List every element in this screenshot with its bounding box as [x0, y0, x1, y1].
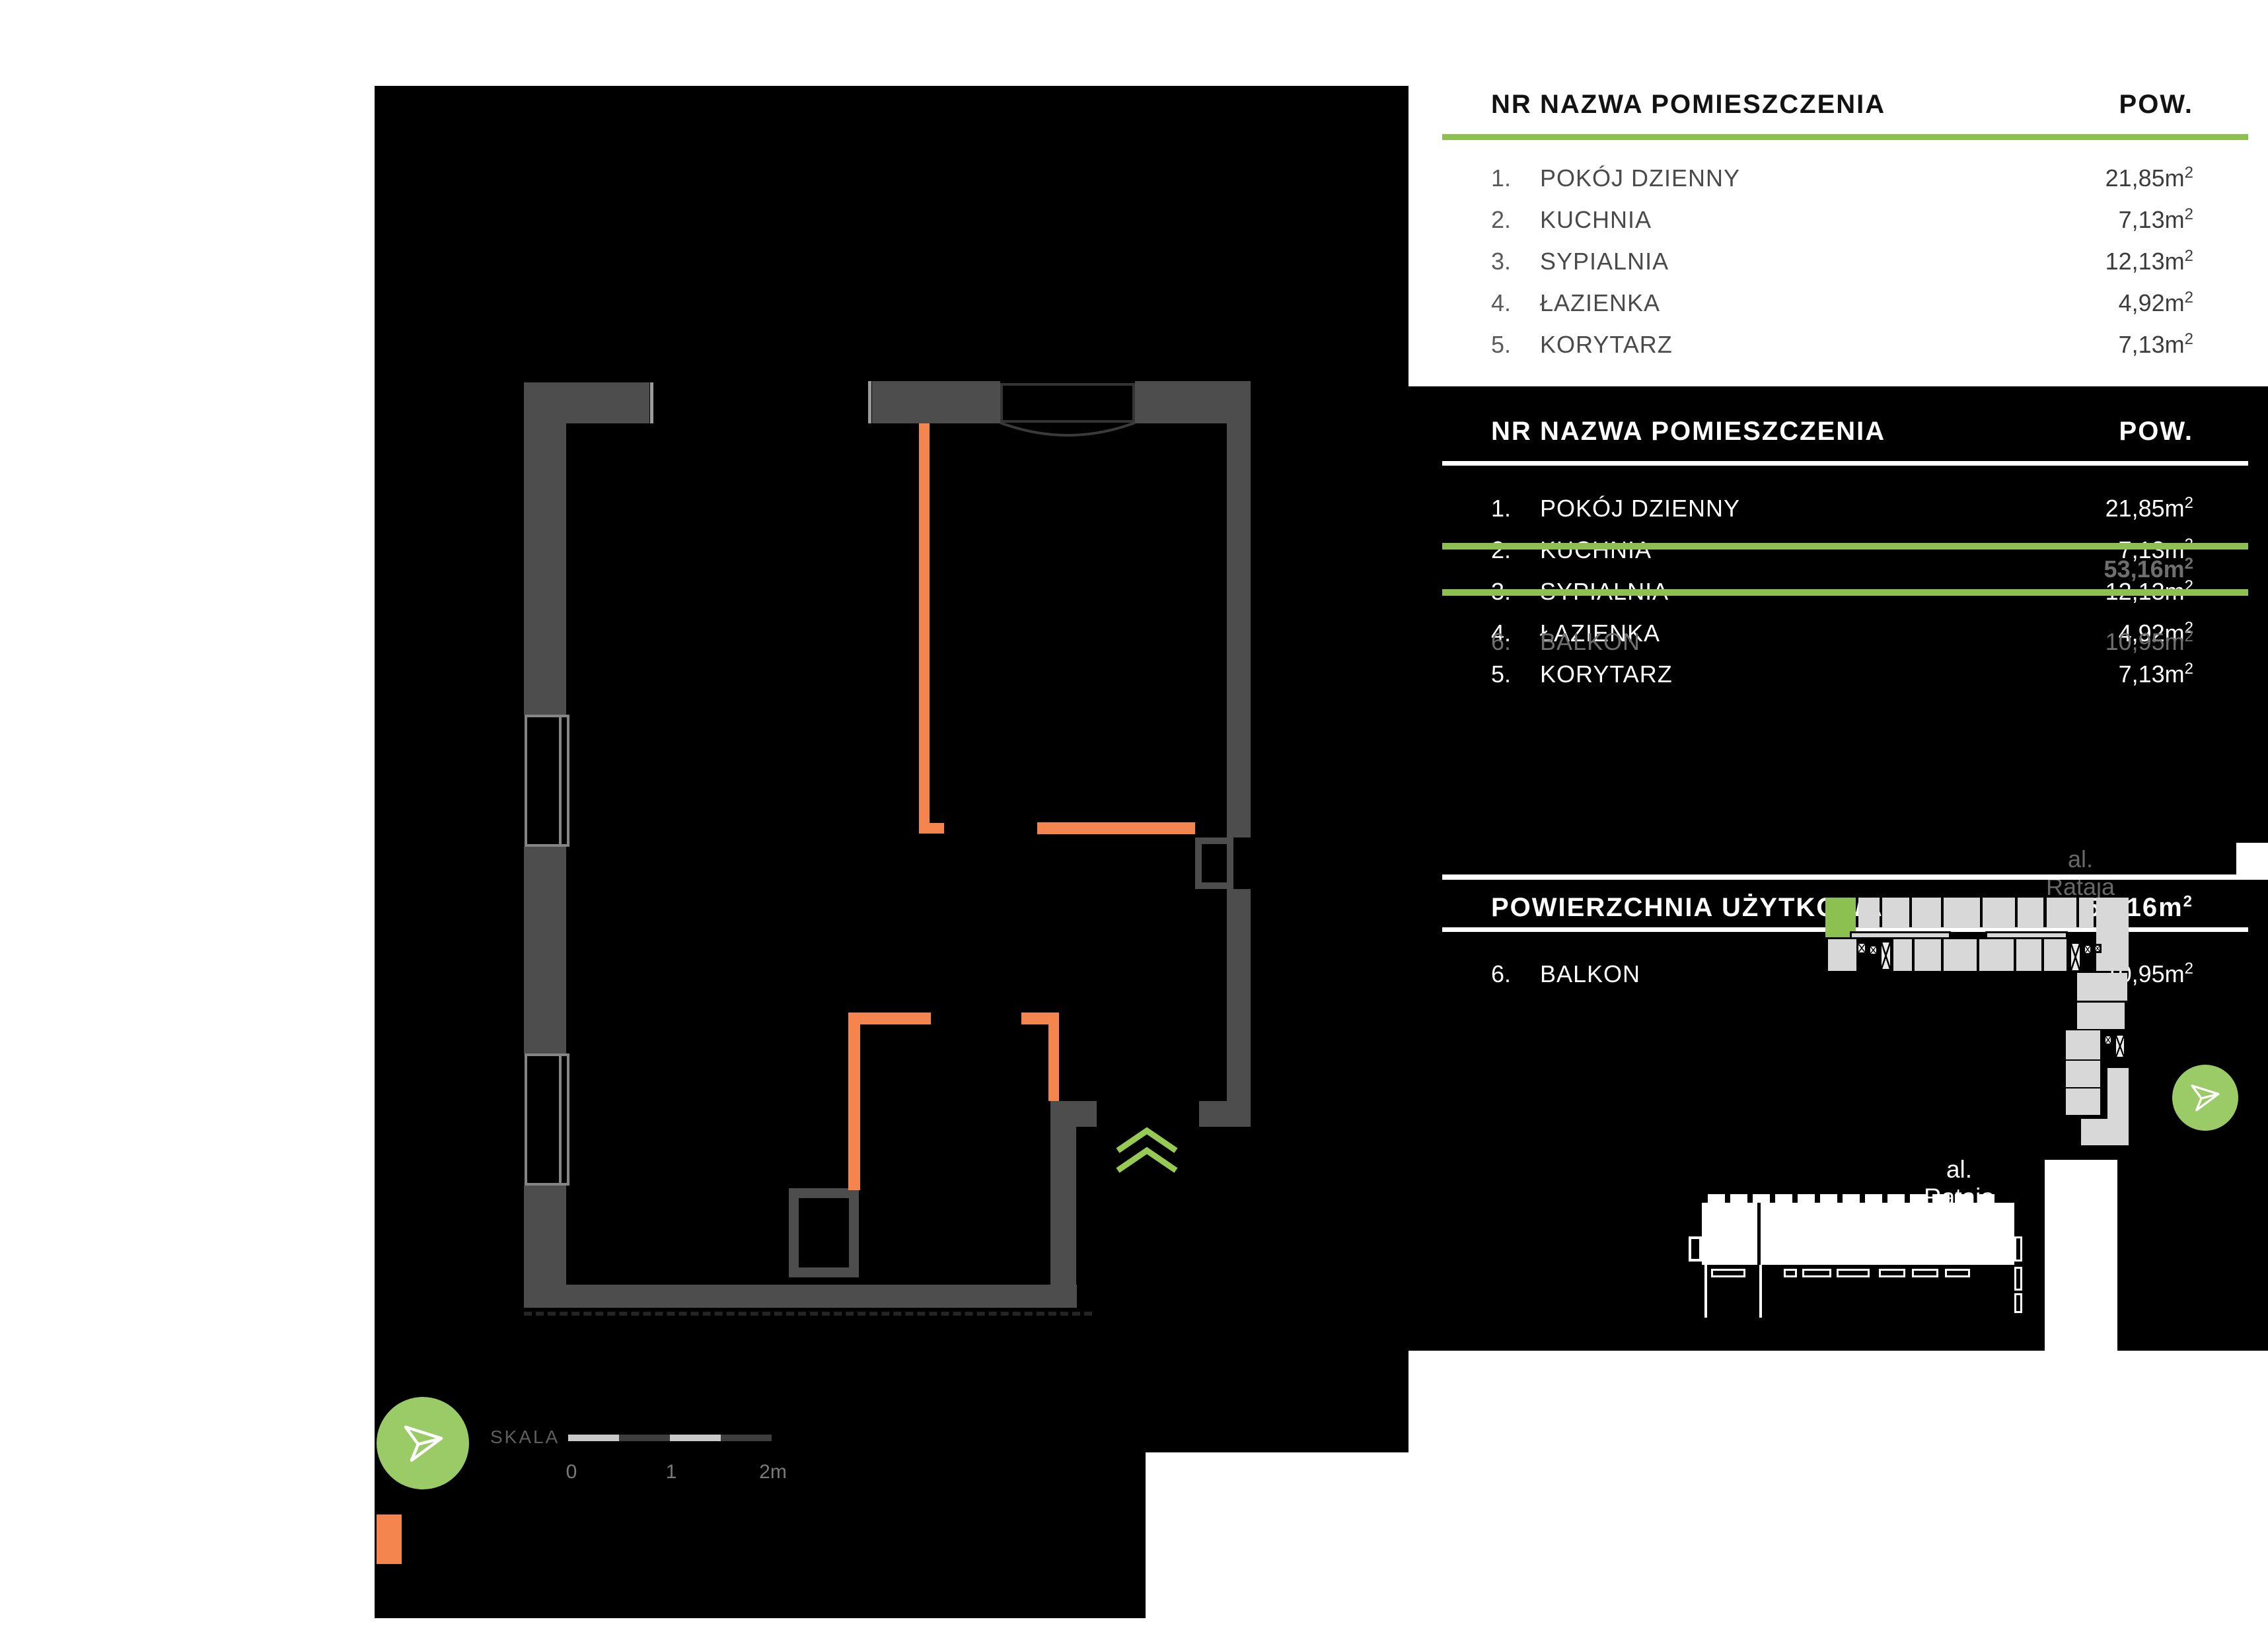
white-corner-notch [2236, 843, 2268, 880]
partition-wall-horizontal-1 [1037, 822, 1195, 834]
stairwell-icon [2069, 942, 2082, 972]
row-value: 10,95m2 [2105, 626, 2193, 658]
scale-label: SKALA [490, 1427, 560, 1448]
wall-top-middle [872, 381, 1000, 423]
site-unit [1983, 898, 2015, 928]
site2-tooth [1865, 1194, 1882, 1203]
site2-tooth [1910, 1194, 1927, 1203]
site-arm-block [2077, 1003, 2125, 1029]
site-corner-unit [2096, 898, 2129, 971]
wall-right-upper [1227, 423, 1251, 837]
site-corridor-bar [1985, 931, 2068, 939]
site2-window [2014, 1293, 2022, 1313]
site2-building-block [1702, 1203, 2014, 1265]
scale-bar-segment [568, 1435, 619, 1441]
table-row: 4. ŁAZIENKA 4,92m2 [1442, 287, 2248, 319]
site2-window [2014, 1267, 2022, 1291]
table-white-rule [1442, 461, 2248, 466]
site-unit [1912, 898, 1941, 928]
row-name: BALKON [1540, 958, 1640, 990]
row-value: 7,13m2 [2119, 204, 2193, 236]
wall-right-lower [1227, 889, 1251, 1101]
room-table-header: NR NAZWA POMIESZCZENIA POW. [1442, 87, 2248, 122]
row-value: 12,13m2 [2105, 246, 2193, 277]
row-nr: 6. [1491, 626, 1511, 658]
site-unit [1944, 898, 1980, 928]
site2-line [1759, 1265, 1762, 1318]
row-name: BALKON [1540, 626, 1640, 658]
site-arm-block [2077, 973, 2127, 1001]
corridor-wall-vertical [1050, 1127, 1076, 1285]
site-unit [1944, 939, 1977, 971]
site-corridor-bar [1850, 931, 1951, 939]
site2-window [1802, 1269, 1831, 1277]
door-swing-arc [998, 420, 1138, 450]
site-unit [2044, 939, 2067, 971]
left-window-lower [525, 1053, 569, 1186]
north-arrow-icon [2183, 1075, 2227, 1119]
site-unit [2016, 939, 2041, 971]
partition-wall-tab [930, 823, 944, 834]
site2-window [1784, 1269, 1797, 1277]
site2-window [2014, 1236, 2022, 1262]
site2-line [1704, 1265, 1707, 1318]
scale-bar-segment [619, 1435, 670, 1441]
site2-window [1945, 1269, 1970, 1277]
partition-wall-horizontal-2 [848, 1013, 931, 1024]
row-value: 21,85m2 [2105, 493, 2193, 524]
ghost-balcony-row: 6. BALKON 10,95m2 [1442, 626, 2248, 658]
site2-tooth [1843, 1194, 1860, 1203]
wall-left-middle [524, 847, 566, 1053]
corridor-wall-block [1050, 1101, 1097, 1127]
floor-plan-sheet: NR NAZWA POMIESZCZENIA POW. 1. POKÓJ DZI… [0, 0, 2268, 1638]
site-unit [1882, 898, 1909, 928]
site2-window [1711, 1269, 1745, 1277]
table-row: 2. KUCHNIA 7,13m2 [1442, 204, 2248, 236]
site-arm-block [2066, 1061, 2100, 1087]
row-name: POKÓJ DZIENNY [1540, 493, 1740, 524]
table-row: 1. POKÓJ DZIENNY 21,85m2 [1442, 162, 2248, 194]
ghost-total-row: 53,16m2 [1442, 553, 2248, 585]
window-jamb-line [650, 382, 653, 423]
north-arrow-badge [377, 1397, 469, 1489]
stairwell-icon [2094, 944, 2102, 953]
ghost-total-value: 53,16m2 [2104, 553, 2193, 585]
site2-tooth [1932, 1194, 1950, 1203]
stairwell-icon [1880, 941, 1892, 971]
row-nr: 3. [1491, 246, 1511, 277]
site2-tooth [1955, 1194, 1972, 1203]
wall-bottom [524, 1285, 1077, 1308]
scale-tick: 1 [658, 1461, 684, 1483]
row-value: 4,92m2 [2119, 287, 2193, 319]
top-window-frame [1000, 383, 1135, 423]
table-row-dark: 5. KORYTARZ 7,13m2 [1442, 659, 2248, 690]
site2-window [1879, 1269, 1905, 1277]
site-unit [2047, 898, 2076, 928]
partition-wall-vertical-1 [919, 423, 930, 834]
site2-tooth [1730, 1194, 1747, 1203]
scale-tick: 0 [558, 1461, 585, 1483]
site2-window [1837, 1269, 1870, 1277]
row-name: SYPIALNIA [1540, 246, 1669, 277]
shaft-box [789, 1188, 859, 1277]
header-nr: NR [1491, 414, 1532, 448]
entrance-wall-stub [1199, 1101, 1251, 1127]
site2-tooth [1798, 1194, 1815, 1203]
scale-bar-segment [670, 1435, 721, 1441]
site2-tooth [1708, 1194, 1725, 1203]
window-inner-line [559, 1056, 562, 1183]
stairwell-icon [1856, 942, 1867, 954]
row-value: 7,13m2 [2119, 329, 2193, 361]
summary-rule-top [1442, 874, 2248, 880]
site-unit [1979, 939, 2014, 971]
table-row: 3. SYPIALNIA 12,13m2 [1442, 246, 2248, 277]
row-nr: 2. [1491, 204, 1511, 236]
entrance-chevron-icon [1114, 1125, 1180, 1176]
row-nr: 4. [1491, 287, 1511, 319]
room-table-header-dark: NR NAZWA POMIESZCZENIA POW. [1442, 414, 2248, 448]
site-unit [2018, 898, 2043, 928]
row-name: KUCHNIA [1540, 204, 1652, 236]
window-inner-line [559, 717, 562, 844]
row-nr: 5. [1491, 329, 1511, 361]
stairwell-icon [2083, 944, 2092, 955]
site-unit [1828, 939, 1856, 971]
site-unit [2079, 898, 2094, 928]
header-pow: POW. [2119, 87, 2193, 122]
stairwell-icon [2103, 1034, 2113, 1046]
row-nr: 1. [1491, 493, 1511, 524]
site2-window [1912, 1269, 1938, 1277]
bottom-hatch-line [524, 1312, 1092, 1316]
site-unit [1915, 939, 1941, 971]
site-unit [1858, 898, 1880, 928]
row-name: KORYTARZ [1540, 659, 1673, 690]
row-nr: 6. [1491, 958, 1511, 990]
partition-wall-vertical-2 [848, 1013, 860, 1190]
row-name: POKÓJ DZIENNY [1540, 162, 1740, 194]
site2-window [1689, 1236, 1702, 1262]
stairwell-icon [2114, 1034, 2126, 1059]
site2-tooth [1977, 1194, 1994, 1203]
north-arrow-badge [2172, 1065, 2238, 1131]
summary-title: POWIERZCHNIA UŻYTKOWA [1491, 890, 1884, 925]
partition-wall-vertical-3 [1048, 1013, 1059, 1101]
wall-top-right [1135, 381, 1251, 423]
table-row: 5. KORYTARZ 7,13m2 [1442, 329, 2248, 361]
site2-tooth [1775, 1194, 1792, 1203]
left-window-upper [525, 715, 569, 847]
row-name: ŁAZIENKA [1540, 287, 1660, 319]
row-value: 7,13m2 [2119, 659, 2193, 690]
site2-tooth [1753, 1194, 1770, 1203]
site2-tooth [1887, 1194, 1905, 1203]
header-nr: NR [1491, 87, 1532, 122]
row-nr: 1. [1491, 162, 1511, 194]
site-arm-block [2107, 1068, 2129, 1119]
stairwell-icon [1868, 944, 1878, 956]
site-unit [1893, 939, 1912, 971]
orange-legend-swatch [377, 1514, 402, 1564]
window-jamb-line [868, 381, 871, 423]
row-nr: 5. [1491, 659, 1511, 690]
table-green-rule [1442, 134, 2248, 140]
header-name: NAZWA POMIESZCZENIA [1540, 87, 1885, 122]
row-value: 21,85m2 [2105, 162, 2193, 194]
header-pow: POW. [2119, 414, 2193, 448]
green-overlay-line-1 [1442, 543, 2248, 550]
site2-road-strip [2045, 1160, 2117, 1351]
north-arrow-icon [394, 1413, 453, 1472]
site2-divider [1757, 1203, 1761, 1265]
site-arm-block [2081, 1119, 2129, 1145]
site-arm-block [2066, 1088, 2100, 1115]
site2-tooth [1820, 1194, 1837, 1203]
green-overlay-line-2 [1442, 589, 2248, 596]
scale-bar-segment [721, 1435, 772, 1441]
wall-niche-box [1195, 837, 1233, 889]
header-name: NAZWA POMIESZCZENIA [1540, 414, 1885, 448]
table-row-dark: 1. POKÓJ DZIENNY 21,85m2 [1442, 493, 2248, 524]
scale-tick: 2m [753, 1461, 793, 1483]
wall-left-upper [524, 382, 566, 715]
row-name: KORYTARZ [1540, 329, 1673, 361]
site-arm-block [2066, 1030, 2100, 1059]
